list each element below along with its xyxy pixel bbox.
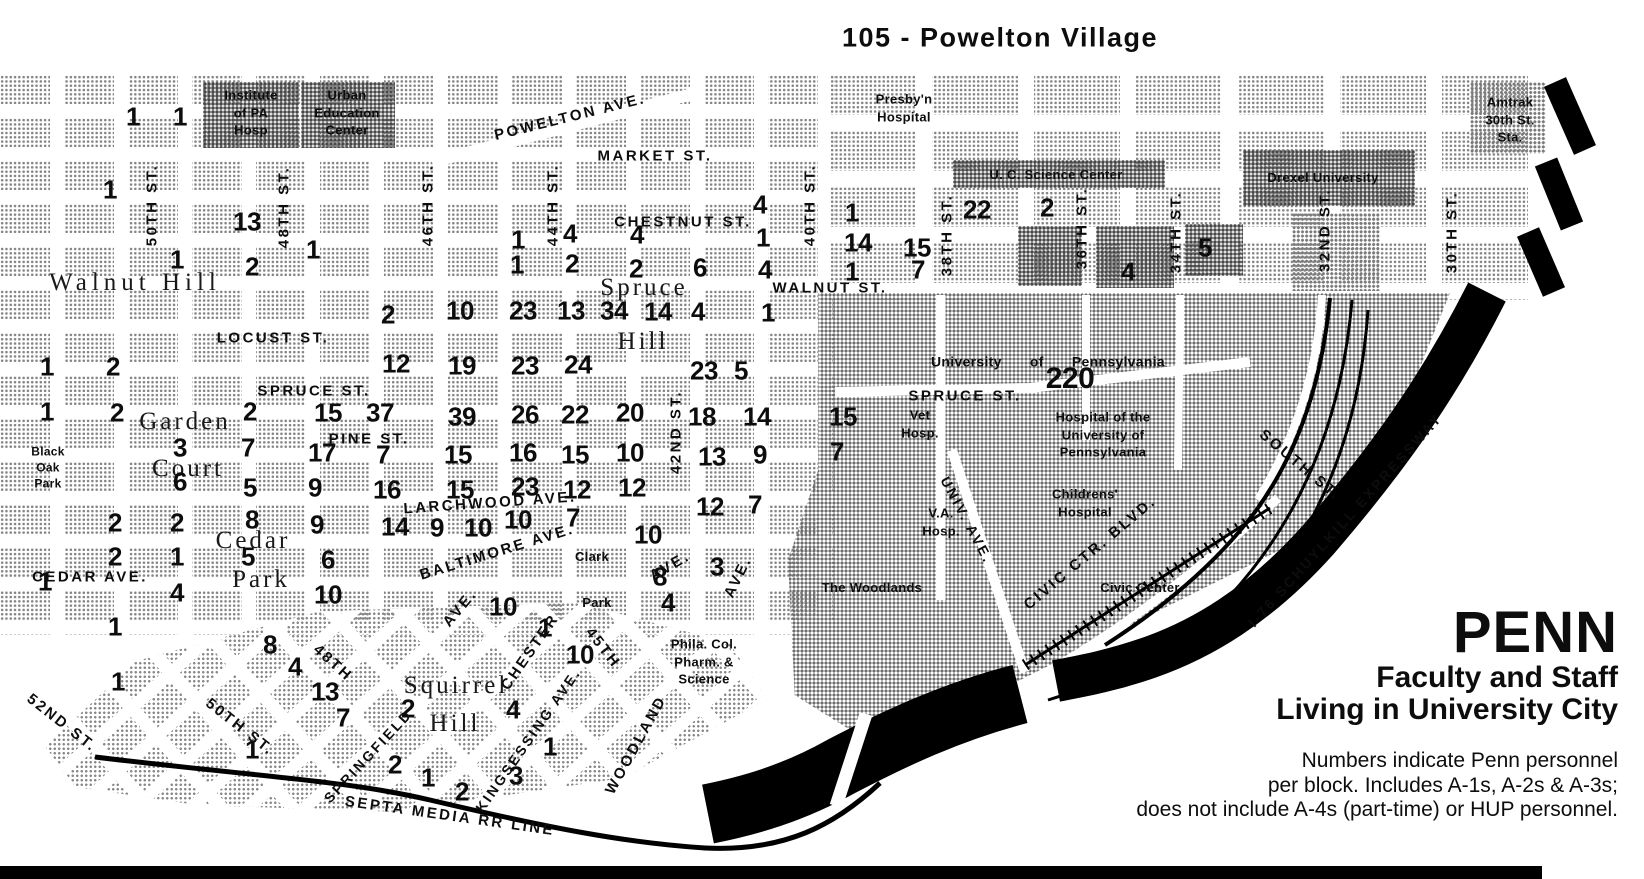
poi-label: UrbanEducationCenter	[314, 87, 380, 140]
poi-label-line: Hospital	[1052, 503, 1118, 521]
block-count: 2	[381, 300, 395, 331]
poi-label-line: Hospital of the	[1056, 409, 1151, 427]
block-count: 7	[336, 703, 350, 734]
block-count: 13	[698, 442, 726, 473]
street-label: PINE ST.	[329, 431, 410, 448]
block-count: 12	[382, 349, 410, 380]
block-count: 15	[561, 440, 589, 471]
block-count: 7	[748, 490, 762, 521]
neighborhood-label: Hill	[430, 710, 481, 738]
poi-label-line: 30th St.	[1485, 111, 1534, 129]
block-count: 22	[561, 400, 589, 431]
block-count: 9	[430, 513, 444, 544]
street-label: 30TH ST.	[1444, 191, 1461, 274]
block-count: 1	[173, 102, 187, 133]
poi-label-line: Center	[314, 122, 380, 140]
legend-notes: Numbers indicate Penn personnel per bloc…	[1136, 749, 1618, 823]
block-count: 12	[696, 492, 724, 523]
block-count: 14	[743, 402, 771, 433]
poi-label: Drexel University	[1267, 169, 1378, 187]
poi-label-line: Sta.	[1485, 129, 1534, 147]
poi-label-line: Black	[31, 444, 65, 460]
block-count: 2	[245, 252, 259, 283]
block-count: 220	[1046, 362, 1095, 396]
block-count: 18	[688, 402, 716, 433]
block-count: 1	[845, 198, 859, 229]
poi-label: Clark	[575, 548, 609, 566]
block-count: 2	[108, 542, 122, 573]
block-count: 1	[103, 175, 117, 206]
block-count: 2	[106, 352, 120, 383]
page-title: 105 - Powelton Village	[842, 23, 1158, 54]
block-count: 1	[40, 352, 54, 383]
poi-label-line: Civic Center	[1100, 579, 1179, 597]
block-count: 4	[758, 255, 772, 286]
poi-label-line: Hosp.	[922, 522, 960, 540]
block-count: 1	[761, 298, 775, 329]
block-count: 14	[644, 297, 672, 328]
neighborhood-label: Court	[152, 455, 224, 483]
poi-label-line: Park	[31, 476, 65, 492]
block-count: 6	[321, 545, 335, 576]
poi-label: Instituteof PAHosp	[224, 87, 277, 140]
block-count: 7	[376, 440, 390, 471]
block-count: 1	[38, 567, 52, 598]
street-label: LOCUST ST.	[217, 330, 330, 347]
block-count: 39	[448, 402, 476, 433]
block-count: 2	[110, 398, 124, 429]
block-count: 9	[308, 473, 322, 504]
block-count: 6	[693, 253, 707, 284]
block-count: 7	[830, 437, 844, 468]
block-count: 3	[509, 761, 523, 792]
block-count: 4	[753, 190, 767, 221]
block-count: 10	[634, 520, 662, 551]
block-count: 4	[170, 578, 184, 609]
poi-label-line: Vet	[901, 406, 939, 424]
building-block	[1018, 226, 1082, 286]
poi-label-line: V.A.	[922, 504, 960, 522]
bottom-border-bar	[0, 866, 1542, 879]
block-count: 10	[616, 438, 644, 469]
street-label: SPRUCE ST.	[908, 388, 1021, 405]
block-count: 23	[511, 351, 539, 382]
map-page: 105 - Powelton Village PENN Faculty and …	[0, 0, 1644, 879]
poi-label-line: Clark	[575, 548, 609, 566]
block-count: 22	[963, 195, 991, 226]
legend: PENN Faculty and Staff Living in Univers…	[1136, 604, 1618, 823]
block-count: 2	[243, 397, 257, 428]
poi-label-line: Hospital	[876, 108, 933, 126]
block-count: 2	[565, 249, 579, 280]
block-count: 4	[1121, 257, 1135, 288]
block-count: 1	[510, 250, 524, 281]
block-count: 1	[126, 102, 140, 133]
poi-label-line: Science	[671, 671, 737, 689]
street-label: 36TH ST.	[1074, 187, 1091, 270]
block-count: 13	[311, 677, 339, 708]
building-block	[1292, 213, 1380, 291]
poi-label-line: Hosp	[224, 122, 277, 140]
block-count: 10	[464, 513, 492, 544]
legend-note-line: does not include A-4s (part-time) or HUP…	[1136, 798, 1618, 823]
block-count: 34	[600, 296, 628, 327]
street-label: 46TH ST.	[420, 164, 437, 247]
block-count: 16	[509, 438, 537, 469]
poi-label: BlackOakPark	[31, 444, 65, 493]
block-count: 23	[690, 356, 718, 387]
block-count: 15	[446, 475, 474, 506]
block-count: 5	[1198, 233, 1212, 264]
block-count: 4	[563, 219, 577, 250]
block-count: 1	[538, 613, 552, 644]
block-count: 23	[509, 296, 537, 327]
block-count: 3	[710, 552, 724, 583]
block-count: 37	[366, 398, 394, 429]
neighborhood-label: Walnut Hill	[49, 269, 221, 297]
poi-label-line: Urban	[314, 87, 380, 105]
block-count: 8	[245, 505, 259, 536]
block-count: 14	[381, 512, 409, 543]
block-count: 14	[844, 228, 872, 259]
street-label: 50TH ST.	[144, 164, 161, 247]
block-count: 2	[108, 508, 122, 539]
poi-label-line: Drexel University	[1267, 169, 1378, 187]
block-count: 5	[734, 356, 748, 387]
poi-label: Civic Center	[1100, 579, 1179, 597]
block-count: 2	[401, 694, 415, 725]
block-count: 2	[170, 508, 184, 539]
legend-subtitle-2: Living in University City	[1136, 694, 1618, 726]
block-count: 15	[314, 398, 342, 429]
block-count: 1	[421, 763, 435, 794]
poi-label-line: Education	[314, 104, 380, 122]
block-count: 1	[245, 735, 259, 766]
neighborhood-label: Squirrel	[404, 672, 509, 700]
poi-label-line: Phila. Col.	[671, 636, 737, 654]
block-count: 5	[243, 473, 257, 504]
block-count: 6	[173, 467, 187, 498]
building-block	[1185, 224, 1243, 276]
block-count: 26	[511, 400, 539, 431]
poi-label: Phila. Col.Pharm. &Science	[671, 636, 737, 689]
poi-label-line: University of	[1056, 426, 1151, 444]
block-count: 2	[388, 750, 402, 781]
block-count: 24	[564, 350, 592, 381]
block-count: 4	[691, 297, 705, 328]
block-count: 1	[543, 732, 557, 763]
block-count: 13	[557, 296, 585, 327]
rail-yard-bar	[1546, 162, 1572, 226]
block-count: 1	[170, 245, 184, 276]
block-count: 8	[263, 630, 277, 661]
poi-label-line: Presby'n	[876, 90, 933, 108]
block-count: 1	[306, 235, 320, 266]
legend-note-line: per block. Includes A-1s, A-2s & A-3s;	[1136, 774, 1618, 799]
poi-label: Childrens'Hospital	[1052, 485, 1118, 520]
poi-label: V.A.Hosp.	[922, 504, 960, 539]
block-count: 7	[241, 433, 255, 464]
poi-label-line: U. C. Science Center	[989, 166, 1122, 184]
block-count: 15	[444, 440, 472, 471]
block-count: 9	[310, 510, 324, 541]
block-count: 2	[1040, 193, 1054, 224]
poi-label-line: Hosp.	[901, 424, 939, 442]
block-count: 5	[241, 542, 255, 573]
poi-label-line: of PA	[224, 104, 277, 122]
block-count: 12	[618, 473, 646, 504]
block-count: 12	[563, 475, 591, 506]
block-count: 1	[111, 667, 125, 698]
street-label: 32ND ST.	[1317, 188, 1334, 272]
block-count: 7	[911, 255, 925, 286]
poi-label: Park	[582, 594, 611, 612]
legend-note-line: Numbers indicate Penn personnel	[1136, 749, 1618, 774]
legend-brand: PENN	[1136, 604, 1618, 662]
block-count: 4	[630, 220, 644, 251]
poi-label-line: Oak	[31, 460, 65, 476]
block-count: 23	[511, 472, 539, 503]
poi-label-line: Institute	[224, 87, 277, 105]
block-count: 3	[173, 433, 187, 464]
block-count: 2	[629, 254, 643, 285]
poi-label-line: Pharm. &	[671, 653, 737, 671]
block-count: 16	[373, 475, 401, 506]
block-count: 10	[489, 592, 517, 623]
street-label: 34TH ST.	[1168, 191, 1185, 274]
street-label: 44TH ST.	[545, 164, 562, 247]
block-count: 7	[566, 503, 580, 534]
street-label: MARKET ST.	[598, 148, 713, 165]
street-label: 42ND ST.	[668, 390, 685, 474]
block-count: 2	[455, 777, 469, 808]
block-count: 1	[40, 397, 54, 428]
block-count: 20	[616, 398, 644, 429]
block-count: 15	[829, 402, 857, 433]
rail-yard-bar	[1555, 82, 1585, 150]
block-count: 1	[756, 223, 770, 254]
poi-label: VetHosp.	[901, 406, 939, 441]
poi-label: The Woodlands	[822, 579, 922, 597]
poi-label: U. C. Science Center	[989, 166, 1122, 184]
poi-label-line: Pennsylvania	[1056, 444, 1151, 462]
block-count: 13	[233, 207, 261, 238]
block-count: 4	[288, 652, 302, 683]
poi-label-line: Park	[582, 594, 611, 612]
block-count: 1	[170, 542, 184, 573]
block-count: 10	[314, 580, 342, 611]
street-label: 48TH ST.	[276, 166, 293, 249]
street-label: 40TH ST.	[802, 164, 819, 247]
poi-label-line: The Woodlands	[822, 579, 922, 597]
legend-subtitle-1: Faculty and Staff	[1136, 662, 1618, 694]
block-count: 17	[308, 438, 336, 469]
street-label: 38TH ST.	[939, 194, 956, 277]
block-count: 1	[108, 612, 122, 643]
block-count: 9	[753, 440, 767, 471]
poi-label-line: Childrens'	[1052, 485, 1118, 503]
block-count: 4	[506, 695, 520, 726]
poi-label: Presby'nHospital	[876, 90, 933, 125]
block-count: 1	[845, 257, 859, 288]
block-count: 19	[448, 351, 476, 382]
street-label: WALNUT ST.	[773, 280, 888, 297]
poi-label: Hospital of theUniversity ofPennsylvania	[1056, 409, 1151, 462]
poi-label-line: Amtrak	[1485, 94, 1534, 112]
neighborhood-label: Hill	[618, 328, 669, 356]
block-count: 4	[661, 588, 675, 619]
block-count: 10	[504, 505, 532, 536]
block-count: 10	[566, 640, 594, 671]
block-count: 10	[446, 296, 474, 327]
poi-label: Amtrak30th St.Sta.	[1485, 94, 1534, 147]
